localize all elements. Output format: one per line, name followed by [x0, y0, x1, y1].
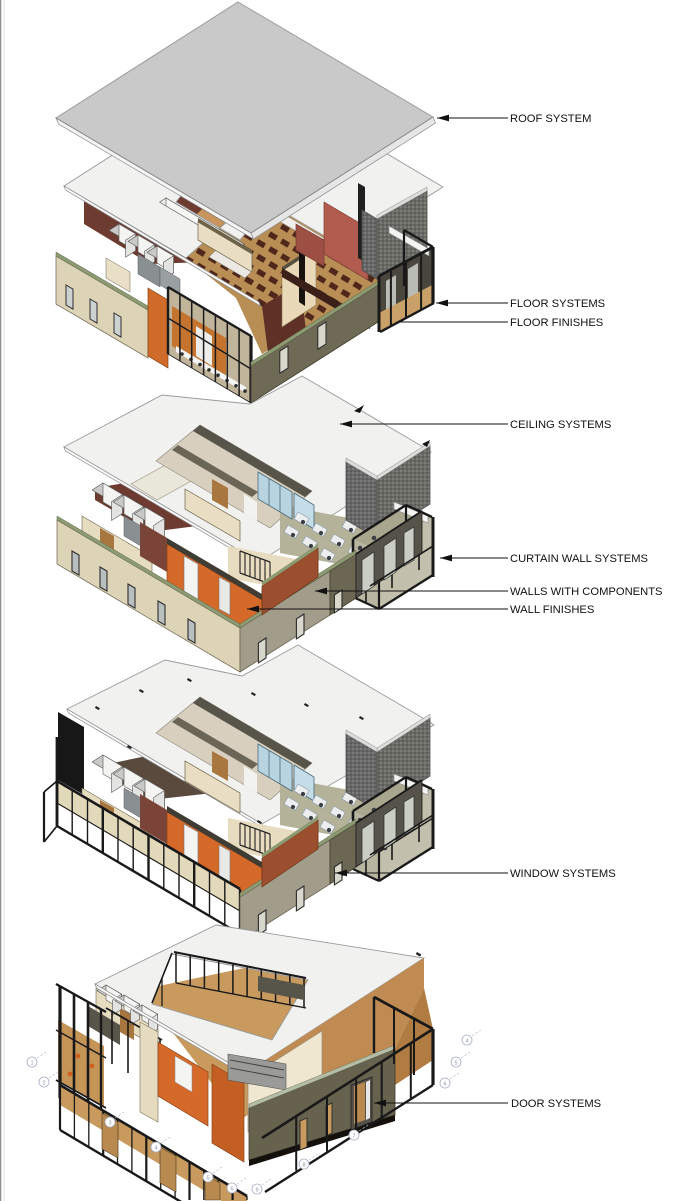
svg-text:CURTAIN WALL SYSTEMS: CURTAIN WALL SYSTEMS	[510, 553, 648, 565]
svg-text:8: 8	[302, 1163, 305, 1169]
svg-text:5: 5	[454, 1061, 457, 1067]
svg-text:CEILING SYSTEMS: CEILING SYSTEMS	[510, 419, 611, 431]
svg-text:6: 6	[230, 1187, 233, 1193]
svg-text:FLOOR SYSTEMS: FLOOR SYSTEMS	[510, 298, 605, 310]
svg-text:WINDOW SYSTEMS: WINDOW SYSTEMS	[510, 868, 616, 880]
svg-text:6: 6	[443, 1082, 446, 1088]
svg-text:4: 4	[154, 1146, 157, 1152]
svg-text:7: 7	[352, 1134, 355, 1140]
svg-text:WALLS WITH COMPONENTS: WALLS WITH COMPONENTS	[510, 586, 663, 598]
svg-text:WALL FINISHES: WALL FINISHES	[510, 604, 594, 616]
svg-text:FLOOR FINISHES: FLOOR FINISHES	[510, 317, 603, 329]
svg-text:DOOR SYSTEMS: DOOR SYSTEMS	[511, 1098, 601, 1110]
svg-text:2: 2	[42, 1081, 45, 1087]
svg-text:3: 3	[108, 1121, 111, 1127]
svg-text:9: 9	[255, 1188, 258, 1194]
svg-text:1: 1	[30, 1061, 33, 1067]
svg-text:4: 4	[465, 1039, 468, 1045]
svg-text:5: 5	[206, 1176, 209, 1182]
svg-text:ROOF SYSTEM: ROOF SYSTEM	[510, 113, 591, 125]
